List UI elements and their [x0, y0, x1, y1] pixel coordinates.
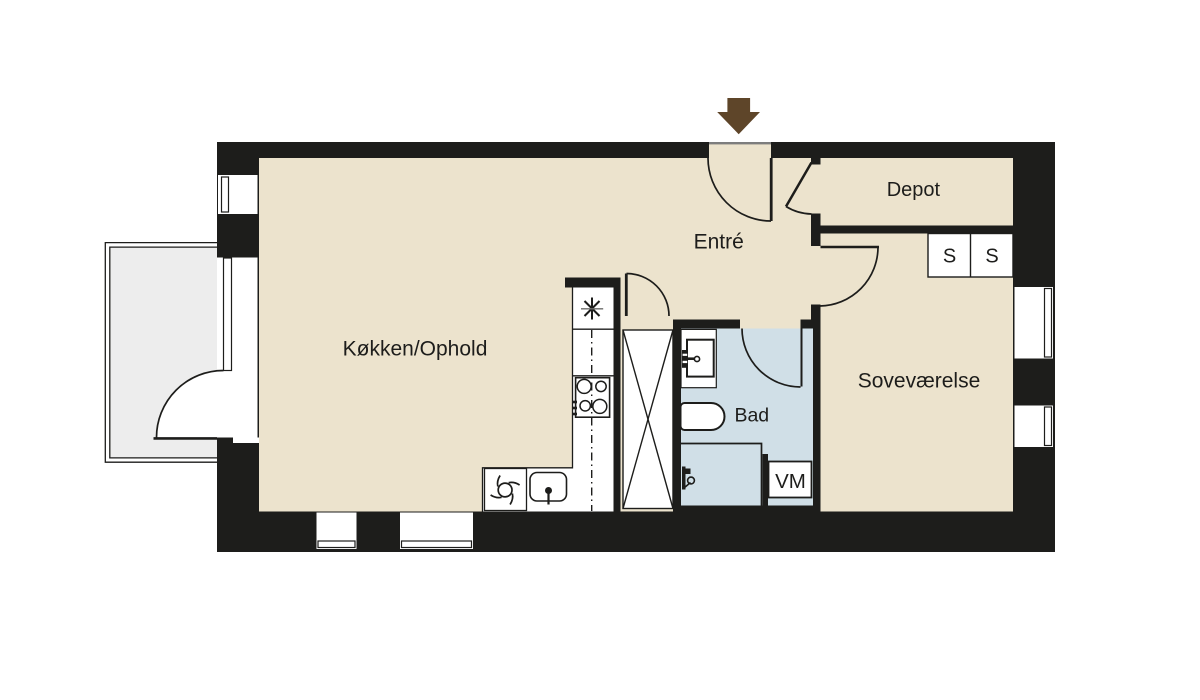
svg-text:Soveværelse: Soveværelse [858, 369, 981, 392]
svg-text:Bad: Bad [734, 405, 769, 427]
svg-text:S: S [943, 245, 956, 267]
svg-text:S: S [985, 245, 998, 267]
svg-text:Entré: Entré [694, 231, 744, 254]
svg-text:Køkken/Ophold: Køkken/Ophold [343, 338, 488, 361]
svg-text:VM: VM [775, 470, 806, 493]
svg-text:Depot: Depot [887, 179, 941, 201]
